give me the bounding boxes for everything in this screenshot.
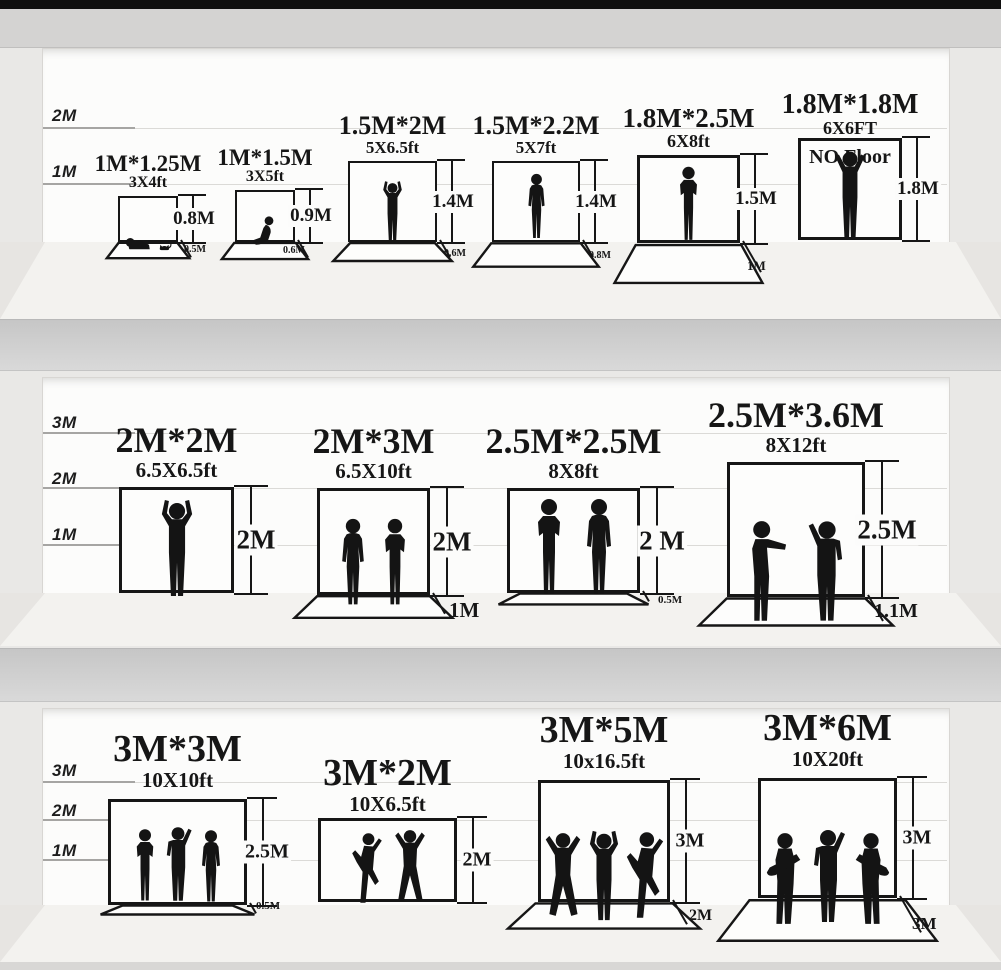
backdrop-header: 2.5M*3.6M 8X12ft: [708, 397, 884, 456]
backdrop-3m-3m: 3M*3M 10X10ft 2.5M 0.5M: [108, 799, 247, 905]
height-dimension: 2M: [234, 485, 280, 595]
people-silhouettes: [317, 514, 430, 612]
dancing-person-silhouette-icon: [625, 827, 665, 923]
guitarist-silhouette-icon: [764, 830, 806, 928]
dimension-tick: [457, 902, 487, 904]
child-arms-up-silhouette-icon: [377, 180, 408, 242]
guitarist-silhouette-icon: [850, 830, 892, 928]
backdrop-header: 3M*3M 10X10ft: [113, 730, 242, 791]
scale-label: 2M: [52, 801, 77, 821]
backdrop-3m-5m: 3M*5M 10x16.5ft 3M 2M: [538, 780, 670, 902]
backdrop-15m-2m: 1.5M*2M 5X6.5ft 1.4M 0.6M: [348, 161, 437, 242]
backdrop-title: 1.8M*1.8M: [782, 91, 919, 120]
people-silhouettes: [492, 172, 580, 242]
dancing-person-silhouette-icon: [585, 829, 623, 923]
sitting-child-silhouette-icon: [249, 215, 281, 249]
backdrop-title: 1M*1.25M: [95, 152, 202, 175]
height-label: 1.4M: [573, 191, 619, 213]
dimension-tick: [865, 597, 899, 599]
height-label: 1.4M: [430, 191, 476, 213]
backdrop-header: 3M*5M 10x16.5ft: [540, 711, 669, 772]
talking-person-silhouette-icon: [579, 498, 619, 598]
people-silhouettes: [637, 166, 740, 243]
backdrop-subtitle: 6X6FT: [782, 119, 919, 138]
people-silhouettes: [798, 147, 902, 240]
height-label: 2.5M: [243, 841, 291, 864]
backdrop-3m-6m: 3M*6M 10X20ft 3M 3M: [758, 778, 897, 898]
height-label: 0.9M: [288, 205, 334, 227]
floor-sweep: [472, 242, 600, 268]
backdrop-header: 1M*1.25M 3X4ft: [95, 152, 202, 192]
backdrop-header: 1.5M*2M 5X6.5ft: [339, 113, 447, 157]
backdrop-subtitle: 8X12ft: [708, 434, 884, 456]
floor-depth-label: 1M: [747, 258, 766, 274]
height-dimension: 3M: [670, 778, 716, 904]
backdrop-header: 3M*2M 10X6.5ft: [323, 754, 452, 815]
height-dimension: 1.5M: [740, 153, 786, 245]
gesturing-person-silhouette-icon: [162, 818, 194, 910]
height-dimension: 2M: [457, 816, 503, 904]
backdrop-title: 3M*3M: [113, 730, 242, 769]
floor-depth-label: 0.6M: [444, 248, 466, 259]
backdrop-header: 1.5M*2.2M 5X7ft: [472, 113, 599, 157]
backdrop-1m-125m: 1M*1.25M 3X4ft 0.8M 0.5M: [118, 196, 178, 242]
people-silhouettes: [108, 818, 247, 910]
floor-sweep: [613, 243, 764, 285]
backdrop-title: 2M*3M: [313, 423, 435, 460]
backdrop-title: 1.5M*2M: [339, 113, 447, 140]
floor-depth-label: 0.8M: [589, 250, 611, 261]
height-dimension: 1.4M: [437, 159, 483, 244]
backdrop-subtitle: 6.5X6.5ft: [116, 459, 238, 481]
backdrop-subtitle: 3X4ft: [95, 175, 202, 192]
scale-label: 3M: [52, 761, 77, 781]
backdrop-title: 1.8M*2.5M: [623, 105, 755, 133]
backdrop-15m-22m: 1.5M*2.2M 5X7ft 1.4M 0.8M: [492, 161, 580, 242]
backdrop-subtitle: 10x16.5ft: [540, 750, 669, 772]
height-dimension: 1.4M: [580, 159, 626, 244]
height-dimension: 0.9M: [295, 188, 341, 244]
height-label: 3M: [674, 830, 707, 853]
backdrop-header: 1M*1.5M 3X5ft: [217, 146, 312, 186]
dancing-person-silhouette-icon: [348, 831, 386, 905]
backdrop-header: 1.8M*2.5M 6X8ft: [623, 105, 755, 151]
backdrop-subtitle: 5X6.5ft: [339, 139, 447, 157]
backdrop-title: 1M*1.5M: [217, 146, 312, 169]
floor-depth-label: 0.5M: [658, 594, 682, 606]
height-dimension: 3M: [897, 776, 943, 900]
dimension-tick: [234, 593, 268, 595]
backdrop-subtitle: 10X10ft: [113, 769, 242, 791]
dancing-person-silhouette-icon: [543, 827, 583, 923]
backdrop-title: 2M*2M: [116, 422, 238, 459]
floor-depth-label: 1M: [449, 598, 479, 623]
pointing-person-silhouette-icon: [742, 519, 792, 625]
backdrop-title: 1.5M*2.2M: [472, 113, 599, 140]
dimension-tick: [902, 240, 930, 242]
height-dimension: 2 M: [640, 486, 686, 595]
photographer-silhouette-icon: [804, 517, 850, 625]
people-silhouettes: [119, 498, 234, 599]
standing-person-silhouette-icon: [377, 514, 413, 612]
backdrop-subtitle: 6X8ft: [623, 132, 755, 151]
backdrop-subtitle: 6.5X10ft: [313, 460, 435, 482]
height-label: 2M: [235, 525, 278, 556]
dimension-tick: [437, 242, 465, 244]
height-label: 2.5M: [855, 514, 918, 545]
backdrop-1m-15m: 1M*1.5M 3X5ft 0.9M 0.6M: [235, 190, 295, 242]
backdrop-title: 3M*6M: [763, 709, 892, 748]
backdrop-header: 3M*6M 10X20ft: [763, 709, 892, 770]
dimension-tick: [670, 902, 700, 904]
people-silhouettes: [507, 498, 640, 598]
bottom-edge-strip: [0, 962, 1001, 970]
scale-label: 1M: [52, 841, 77, 861]
backdrop-subtitle: 5X7ft: [472, 139, 599, 157]
height-label: 2M: [431, 526, 474, 557]
floor-depth-label: 0.5M: [256, 900, 280, 912]
backdrop-18m-18m-no-floor: 1.8M*1.8M 6X6FT NO Floor 1.8M: [798, 138, 902, 240]
height-dimension: 1.8M: [902, 136, 948, 242]
backdrop-25m-36m: 2.5M*3.6M 8X12ft 2.5M 1.1M: [727, 462, 865, 597]
backdrop-25m-25m: 2.5M*2.5M 8X8ft 2 M 0.5M: [507, 488, 640, 593]
backdrop-3m-2m: 3M*2M 10X6.5ft 2M: [318, 818, 457, 902]
backdrop-2m-3m: 2M*3M 6.5X10ft 2M 1M: [317, 488, 430, 595]
backdrop-title: 3M*2M: [323, 754, 452, 793]
backdrop-header: 2M*3M 6.5X10ft: [313, 423, 435, 482]
people-silhouettes: [235, 215, 295, 249]
backdrop-18m-25m: 1.8M*2.5M 6X8ft 1.5M 1M: [637, 155, 740, 243]
backdrop-title: 2.5M*2.5M: [486, 423, 662, 460]
backdrop-header: 2.5M*2.5M 8X8ft: [486, 423, 662, 482]
infographic-canvas: 2M 1M 1M*1.25M 3X4ft 0.8M 0.5M 1M*1.5M: [0, 0, 1001, 970]
backdrop-title: 2.5M*3.6M: [708, 397, 884, 434]
height-dimension: 2.5M: [865, 460, 911, 599]
akimbo-person-silhouette-icon: [672, 166, 705, 243]
people-silhouettes: [758, 824, 897, 928]
floor-depth-label: 0.6M: [283, 245, 305, 256]
backdrop-subtitle: 8X8ft: [486, 460, 662, 482]
singer-silhouette-icon: [808, 824, 848, 928]
backdrop-title: 3M*5M: [540, 711, 669, 750]
standing-person-silhouette-icon: [196, 824, 226, 910]
dancing-person-silhouette-icon: [392, 827, 428, 905]
dimension-tick: [740, 243, 768, 245]
backdrop-subtitle: 10X20ft: [763, 748, 892, 770]
height-label: 1.8M: [895, 178, 941, 200]
floor-depth-label: 0.5M: [184, 244, 206, 255]
people-silhouettes: [318, 827, 457, 905]
standing-person-silhouette-icon: [523, 172, 550, 242]
height-label: 2M: [461, 849, 494, 872]
people-silhouettes: [538, 827, 670, 923]
dimension-tick: [580, 242, 608, 244]
backdrop-2m-2m: 2M*2M 6.5X6.5ft 2M: [119, 487, 234, 593]
floor-depth-label: 3M: [912, 914, 937, 934]
backdrop-header: 1.8M*1.8M 6X6FT: [782, 91, 919, 138]
arms-raised-person-silhouette-icon: [828, 147, 872, 240]
height-dimension: 0.8M: [178, 194, 224, 244]
height-dimension: 2M: [430, 486, 476, 597]
talking-person-silhouette-icon: [529, 498, 569, 598]
baby-silhouette-icon: [125, 234, 155, 251]
people-silhouettes: [118, 234, 178, 251]
people-silhouettes: [727, 517, 865, 625]
floor-depth-label: 2M: [689, 907, 712, 925]
cat-silhouette-icon: [158, 241, 172, 251]
dimension-tick: [430, 595, 464, 597]
backdrop-header: 2M*2M 6.5X6.5ft: [116, 422, 238, 481]
dimension-tick: [897, 898, 927, 900]
height-label: 3M: [901, 827, 934, 850]
height-label: 1.5M: [733, 188, 779, 210]
cheering-person-silhouette-icon: [154, 498, 200, 599]
backdrop-subtitle: 3X5ft: [217, 169, 312, 186]
height-dimension: 2.5M: [247, 797, 293, 907]
standing-person-silhouette-icon: [335, 514, 371, 612]
dimension-tick: [295, 242, 323, 244]
height-label: 2 M: [637, 525, 687, 556]
floor-sweep: [332, 242, 453, 262]
backdrop-subtitle: 10X6.5ft: [323, 793, 452, 815]
floor-depth-label: 1.1M: [874, 600, 918, 623]
people-silhouettes: [348, 180, 437, 242]
height-label: 0.8M: [171, 208, 217, 230]
standing-person-silhouette-icon: [130, 822, 160, 910]
